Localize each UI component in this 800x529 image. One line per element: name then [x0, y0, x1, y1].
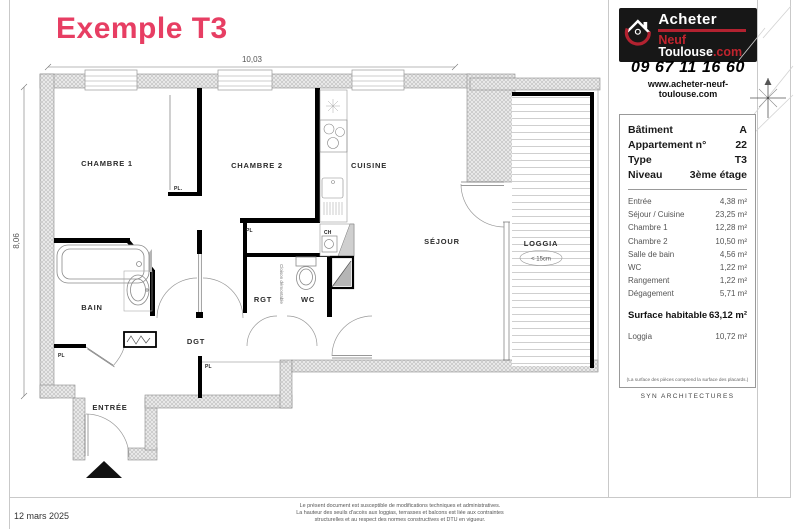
dimension-width-label: 10,03 [242, 55, 263, 64]
surface-value: 10,72 m² [715, 330, 747, 343]
surface-label: Séjour / Cuisine [628, 208, 684, 221]
surface-row-chambre1: Chambre 112,28 m² [628, 221, 747, 234]
surface-row-chambre2: Chambre 210,50 m² [628, 235, 747, 248]
surface-row-rangement: Rangement1,22 m² [628, 274, 747, 287]
toilet [296, 257, 316, 290]
architect-name: SYN ARCHITECTURES [619, 393, 756, 400]
surface-label: Surface habitable [628, 310, 707, 321]
dimension-lines [21, 64, 458, 399]
floor-plan: 10,03 8,06 [10, 45, 610, 500]
surface-row-salle-de-bain: Salle de bain4,56 m² [628, 248, 747, 261]
surface-row-entree: Entrée4,38 m² [628, 195, 747, 208]
surface-value: 5,71 m² [720, 287, 747, 300]
dimension-height-label: 8,06 [12, 233, 21, 249]
placards-note: (La surface des pièces comprend la surfa… [622, 377, 753, 382]
plan-date: 12 mars 2025 [14, 511, 69, 521]
info-label: Type [628, 153, 652, 168]
room-label-chambre1: CHAMBRE 1 [81, 159, 133, 168]
surface-label: Salle de bain [628, 248, 674, 261]
room-label-bain: BAIN [81, 303, 103, 312]
surface-value: 23,25 m² [715, 208, 747, 221]
loggia-door-swing [461, 184, 504, 227]
info-label: Niveau [628, 168, 662, 183]
info-row-batiment: BâtimentA [628, 123, 747, 138]
surface-row-wc: WC1,22 m² [628, 261, 747, 274]
disclaimer-line: La hauteur des seuils d'accès aux loggia… [268, 510, 532, 517]
info-row-type: TypeT3 [628, 153, 747, 168]
technical-duct [331, 257, 353, 288]
interior-walls [54, 88, 332, 398]
surface-label: Rangement [628, 274, 669, 287]
closet-label-chambre1: PL. [174, 186, 183, 192]
closet-label-bain: PL [58, 353, 65, 359]
room-label-cuisine: CUISINE [351, 161, 387, 170]
surface-value: 10,50 m² [715, 235, 747, 248]
loggia-window [503, 222, 510, 360]
surface-label: Chambre 2 [628, 235, 668, 248]
loggia-surface-row: Loggia10,72 m² [628, 330, 747, 343]
surface-value: 12,28 m² [715, 221, 747, 234]
info-row-appartement: Appartement n°22 [628, 138, 747, 153]
apartment-info-panel: BâtimentA Appartement n°22 TypeT3 Niveau… [619, 114, 756, 388]
radiator [124, 332, 156, 347]
surface-habitable-row: Surface habitable63,12 m² [628, 310, 747, 321]
entrance-arrow [86, 461, 122, 478]
logo-red-bar [658, 29, 746, 32]
info-label: Appartement n° [628, 138, 706, 153]
info-value: T3 [735, 153, 747, 168]
room-label-loggia: LOGGIA [524, 239, 558, 248]
info-value: 22 [735, 138, 747, 153]
loggia-depth-label: < 15cm [531, 257, 551, 263]
surface-value: 1,22 m² [720, 274, 747, 287]
room-label-dgt: DGT [187, 337, 205, 346]
water-heater-closet [320, 224, 354, 256]
room-label-wc: WC [301, 295, 315, 304]
closet-label-chambre2: PL [246, 228, 253, 234]
legal-disclaimer: Le présent document est susceptible de m… [268, 503, 532, 523]
room-label-sejour: SÉJOUR [424, 237, 460, 246]
surface-value: 63,12 m² [709, 310, 747, 321]
disclaimer-line: Le présent document est susceptible de m… [268, 503, 532, 510]
water-heater-label: CH [324, 230, 332, 236]
surface-label: Chambre 1 [628, 221, 668, 234]
surface-label: Dégagement [628, 287, 674, 300]
surface-value: 4,56 m² [720, 248, 747, 261]
surface-label: WC [628, 261, 641, 274]
info-row-niveau: Niveau3ème étage [628, 168, 747, 183]
loggia-door-leaf [461, 182, 504, 186]
disclaimer-line: structurelles et au respect des normes c… [268, 517, 532, 524]
surface-label: Loggia [628, 330, 652, 343]
surface-row-degagement: Dégagement5,71 m² [628, 287, 747, 300]
room-label-entree: ENTRÉE [92, 403, 127, 412]
room-label-rgt: RGT [254, 295, 272, 304]
room-label-chambre2: CHAMBRE 2 [231, 161, 283, 170]
window [85, 70, 404, 90]
page-title: Exemple T3 [56, 12, 228, 46]
bathtub [57, 245, 149, 283]
surface-label: Entrée [628, 195, 652, 208]
info-value: A [739, 123, 747, 138]
surface-value: 4,38 m² [720, 195, 747, 208]
surface-value: 1,22 m² [720, 261, 747, 274]
kitchen-counter [320, 90, 347, 222]
panel-divider [628, 189, 747, 190]
info-label: Bâtiment [628, 123, 673, 138]
surface-row-sejour-cuisine: Séjour / Cuisine23,25 m² [628, 208, 747, 221]
house-logo-icon [624, 14, 653, 56]
partition-label: Cloison démontable [279, 264, 284, 304]
closet-label-dgt: PL [205, 364, 212, 370]
logo-word-toulouse: Toulouse [658, 45, 713, 59]
info-value: 3ème étage [690, 168, 747, 183]
